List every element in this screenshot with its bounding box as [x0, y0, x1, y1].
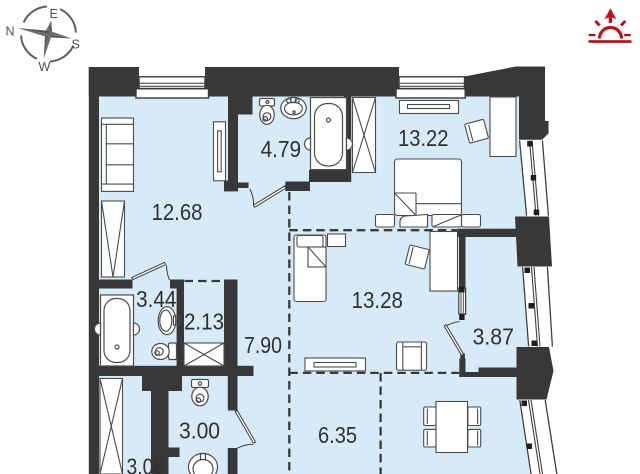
svg-text:2.13: 2.13: [184, 309, 224, 335]
svg-text:S: S: [72, 38, 80, 52]
svg-text:3.00: 3.00: [179, 418, 220, 444]
svg-text:6.35: 6.35: [318, 422, 357, 448]
svg-text:13.28: 13.28: [352, 287, 404, 313]
svg-text:7.90: 7.90: [244, 332, 282, 358]
svg-text:3.08: 3.08: [127, 454, 165, 474]
svg-text:13.22: 13.22: [398, 125, 449, 151]
svg-text:E: E: [50, 7, 58, 21]
svg-text:4.79: 4.79: [261, 136, 302, 162]
svg-text:12.68: 12.68: [152, 199, 203, 225]
svg-text:N: N: [6, 25, 15, 39]
svg-text:W: W: [39, 60, 51, 74]
svg-text:3.87: 3.87: [473, 324, 515, 350]
